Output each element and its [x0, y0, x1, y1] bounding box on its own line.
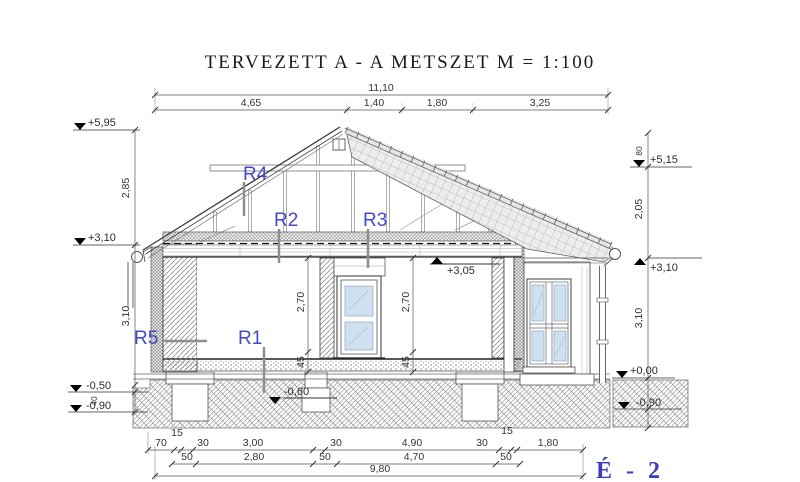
dim-b2-1: 50: [181, 451, 193, 463]
window-pane: [532, 331, 544, 361]
dim-top-seg1: 4,65: [241, 97, 262, 109]
dim-right-lower: 3,10: [633, 308, 645, 329]
dim-top-seg3: 1,80: [427, 97, 448, 109]
section-drawing: +3,05 -0,60 2,70 45 2,70 45 R4 R2 R3 R1 …: [0, 0, 800, 482]
dim-b1-4: 3,00: [243, 437, 264, 449]
level-left-eaves: +3,10: [88, 232, 116, 244]
dim-right-top: 80: [634, 146, 644, 156]
dim-b1-2: 15: [171, 427, 183, 439]
right-wing-elevation: [520, 258, 613, 385]
label-r3: R3: [363, 210, 387, 231]
level-foundation: -0,60: [284, 386, 309, 398]
dim-room1-height: 2,70: [295, 292, 307, 313]
dim-b1-3: 30: [197, 437, 209, 449]
dim-b1-7: 30: [476, 437, 488, 449]
level-attic-floor: +3,05: [447, 265, 475, 277]
interior-wall-b: [492, 258, 504, 358]
dim-room2-floor: 45: [400, 356, 412, 368]
floor-structure: [163, 359, 522, 372]
dim-left-lower: 3,10: [120, 306, 132, 327]
dim-top-total: 11,10: [368, 82, 394, 94]
dim-room2-height: 2,70: [400, 292, 412, 313]
label-r1: R1: [238, 328, 262, 349]
dim-b1-6: 4,90: [402, 437, 423, 449]
dim-left-upper: 2,85: [120, 178, 132, 199]
dim-b2-4: 4,70: [404, 451, 425, 463]
door-glass-top: [345, 286, 373, 316]
dim-top-seg2: 1,40: [364, 97, 385, 109]
dim-left-small: 40: [89, 396, 99, 406]
dim-right-mid: 2,05: [633, 199, 645, 220]
dim-b3-total: 9,80: [370, 463, 391, 475]
left-gutter: [132, 252, 143, 263]
interior-wall-a: [320, 258, 334, 358]
drawing-title: TERVEZETT A - A METSZET M = 1:100: [205, 52, 596, 73]
left-wall: [163, 247, 197, 372]
label-r4: R4: [243, 164, 268, 185]
ground-hatch: [133, 380, 688, 428]
level-right-wing-ridge: +5,15: [650, 154, 678, 166]
dim-b1-8: 15: [501, 425, 513, 437]
right-wall: [504, 247, 514, 372]
dim-b1-1: 70: [155, 437, 167, 449]
wing-plinth: [520, 374, 594, 385]
level-right-eaves: +3,10: [650, 262, 678, 274]
drawing-sheet: +3,05 -0,60 2,70 45 2,70 45 R4 R2 R3 R1 …: [0, 0, 800, 482]
level-left-ridge: +5,95: [88, 117, 116, 129]
dim-b2-2: 2,80: [244, 451, 265, 463]
interior-door: [334, 258, 385, 358]
dim-b2-3: 50: [319, 451, 331, 463]
window-sill: [523, 367, 575, 373]
label-r5: R5: [134, 328, 158, 349]
level-right-grade: +0,00: [630, 365, 658, 377]
dim-b1-5: 30: [330, 437, 342, 449]
dim-room1-floor: 45: [295, 356, 307, 368]
level-right-foundation: -0,90: [636, 397, 661, 409]
label-r2: R2: [274, 210, 298, 231]
right-wall-insulation: [514, 247, 524, 372]
dim-top-seg4: 3,25: [530, 97, 551, 109]
dim-b2-5: 50: [500, 451, 512, 463]
sheet-label: É - 2: [596, 458, 664, 482]
left-wall-insulation: [151, 247, 163, 372]
dim-b1-9: 1,80: [538, 437, 559, 449]
level-left-grade: -0,50: [86, 380, 111, 392]
right-gutter: [610, 249, 621, 260]
window-pane: [554, 285, 566, 321]
